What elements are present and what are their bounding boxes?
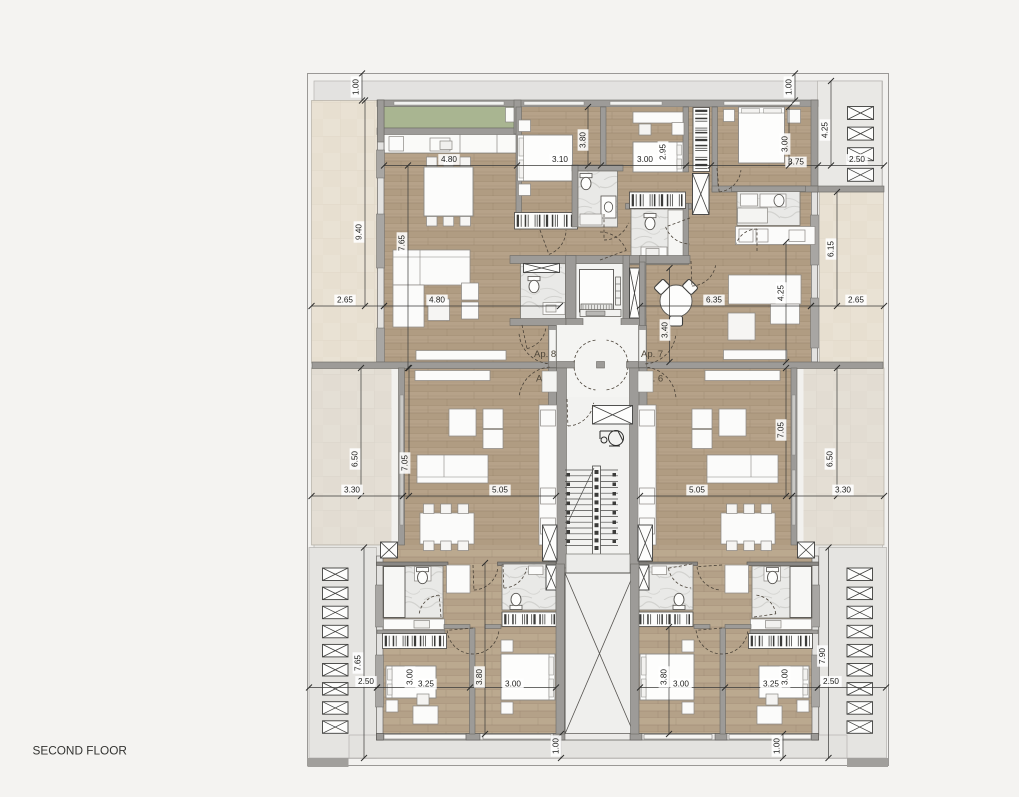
svg-text:2.50: 2.50 (849, 155, 865, 164)
svg-text:3.10: 3.10 (552, 155, 568, 164)
svg-text:5.05: 5.05 (689, 486, 705, 495)
svg-text:2.50: 2.50 (823, 677, 839, 686)
svg-text:7.05: 7.05 (777, 422, 786, 438)
svg-text:6.35: 6.35 (706, 296, 722, 305)
svg-text:3.75: 3.75 (788, 158, 804, 167)
svg-text:3.30: 3.30 (835, 486, 851, 495)
svg-text:3.00: 3.00 (781, 669, 790, 685)
svg-text:3.25: 3.25 (418, 680, 434, 689)
svg-text:3.25: 3.25 (763, 680, 779, 689)
svg-text:3.00: 3.00 (781, 136, 790, 152)
svg-text:2.95: 2.95 (659, 144, 668, 160)
svg-text:6.15: 6.15 (827, 241, 836, 257)
svg-text:Ap. 7: Ap. 7 (641, 349, 663, 360)
svg-text:3.00: 3.00 (505, 680, 521, 689)
svg-text:4.80: 4.80 (429, 296, 445, 305)
svg-text:2.50: 2.50 (358, 677, 374, 686)
svg-text:2.65: 2.65 (337, 296, 353, 305)
svg-text:1.00: 1.00 (773, 738, 782, 754)
svg-text:7.05: 7.05 (401, 455, 410, 471)
svg-text:4.25: 4.25 (821, 122, 830, 138)
svg-text:6.50: 6.50 (826, 451, 835, 467)
svg-text:3.40: 3.40 (661, 322, 670, 338)
svg-text:SECOND FLOOR: SECOND FLOOR (33, 744, 127, 758)
svg-text:Ap. 8: Ap. 8 (534, 349, 556, 360)
svg-text:4.80: 4.80 (441, 155, 457, 164)
svg-text:3.00: 3.00 (637, 155, 653, 164)
svg-text:2.65: 2.65 (848, 296, 864, 305)
svg-text:9.40: 9.40 (355, 224, 364, 240)
svg-text:3.80: 3.80 (579, 132, 588, 148)
svg-text:3.00: 3.00 (406, 669, 415, 685)
svg-text:7.65: 7.65 (398, 235, 407, 251)
svg-text:7.90: 7.90 (818, 648, 827, 664)
svg-text:3.30: 3.30 (344, 486, 360, 495)
svg-text:5.05: 5.05 (492, 486, 508, 495)
svg-text:4.25: 4.25 (777, 285, 786, 301)
svg-text:3.80: 3.80 (475, 669, 484, 685)
svg-text:7.65: 7.65 (354, 655, 363, 671)
svg-text:1.00: 1.00 (785, 79, 794, 95)
svg-text:3.00: 3.00 (673, 680, 689, 689)
svg-text:6.50: 6.50 (351, 451, 360, 467)
svg-text:1.00: 1.00 (552, 738, 561, 754)
svg-text:1.00: 1.00 (352, 79, 361, 95)
svg-text:3.80: 3.80 (660, 669, 669, 685)
